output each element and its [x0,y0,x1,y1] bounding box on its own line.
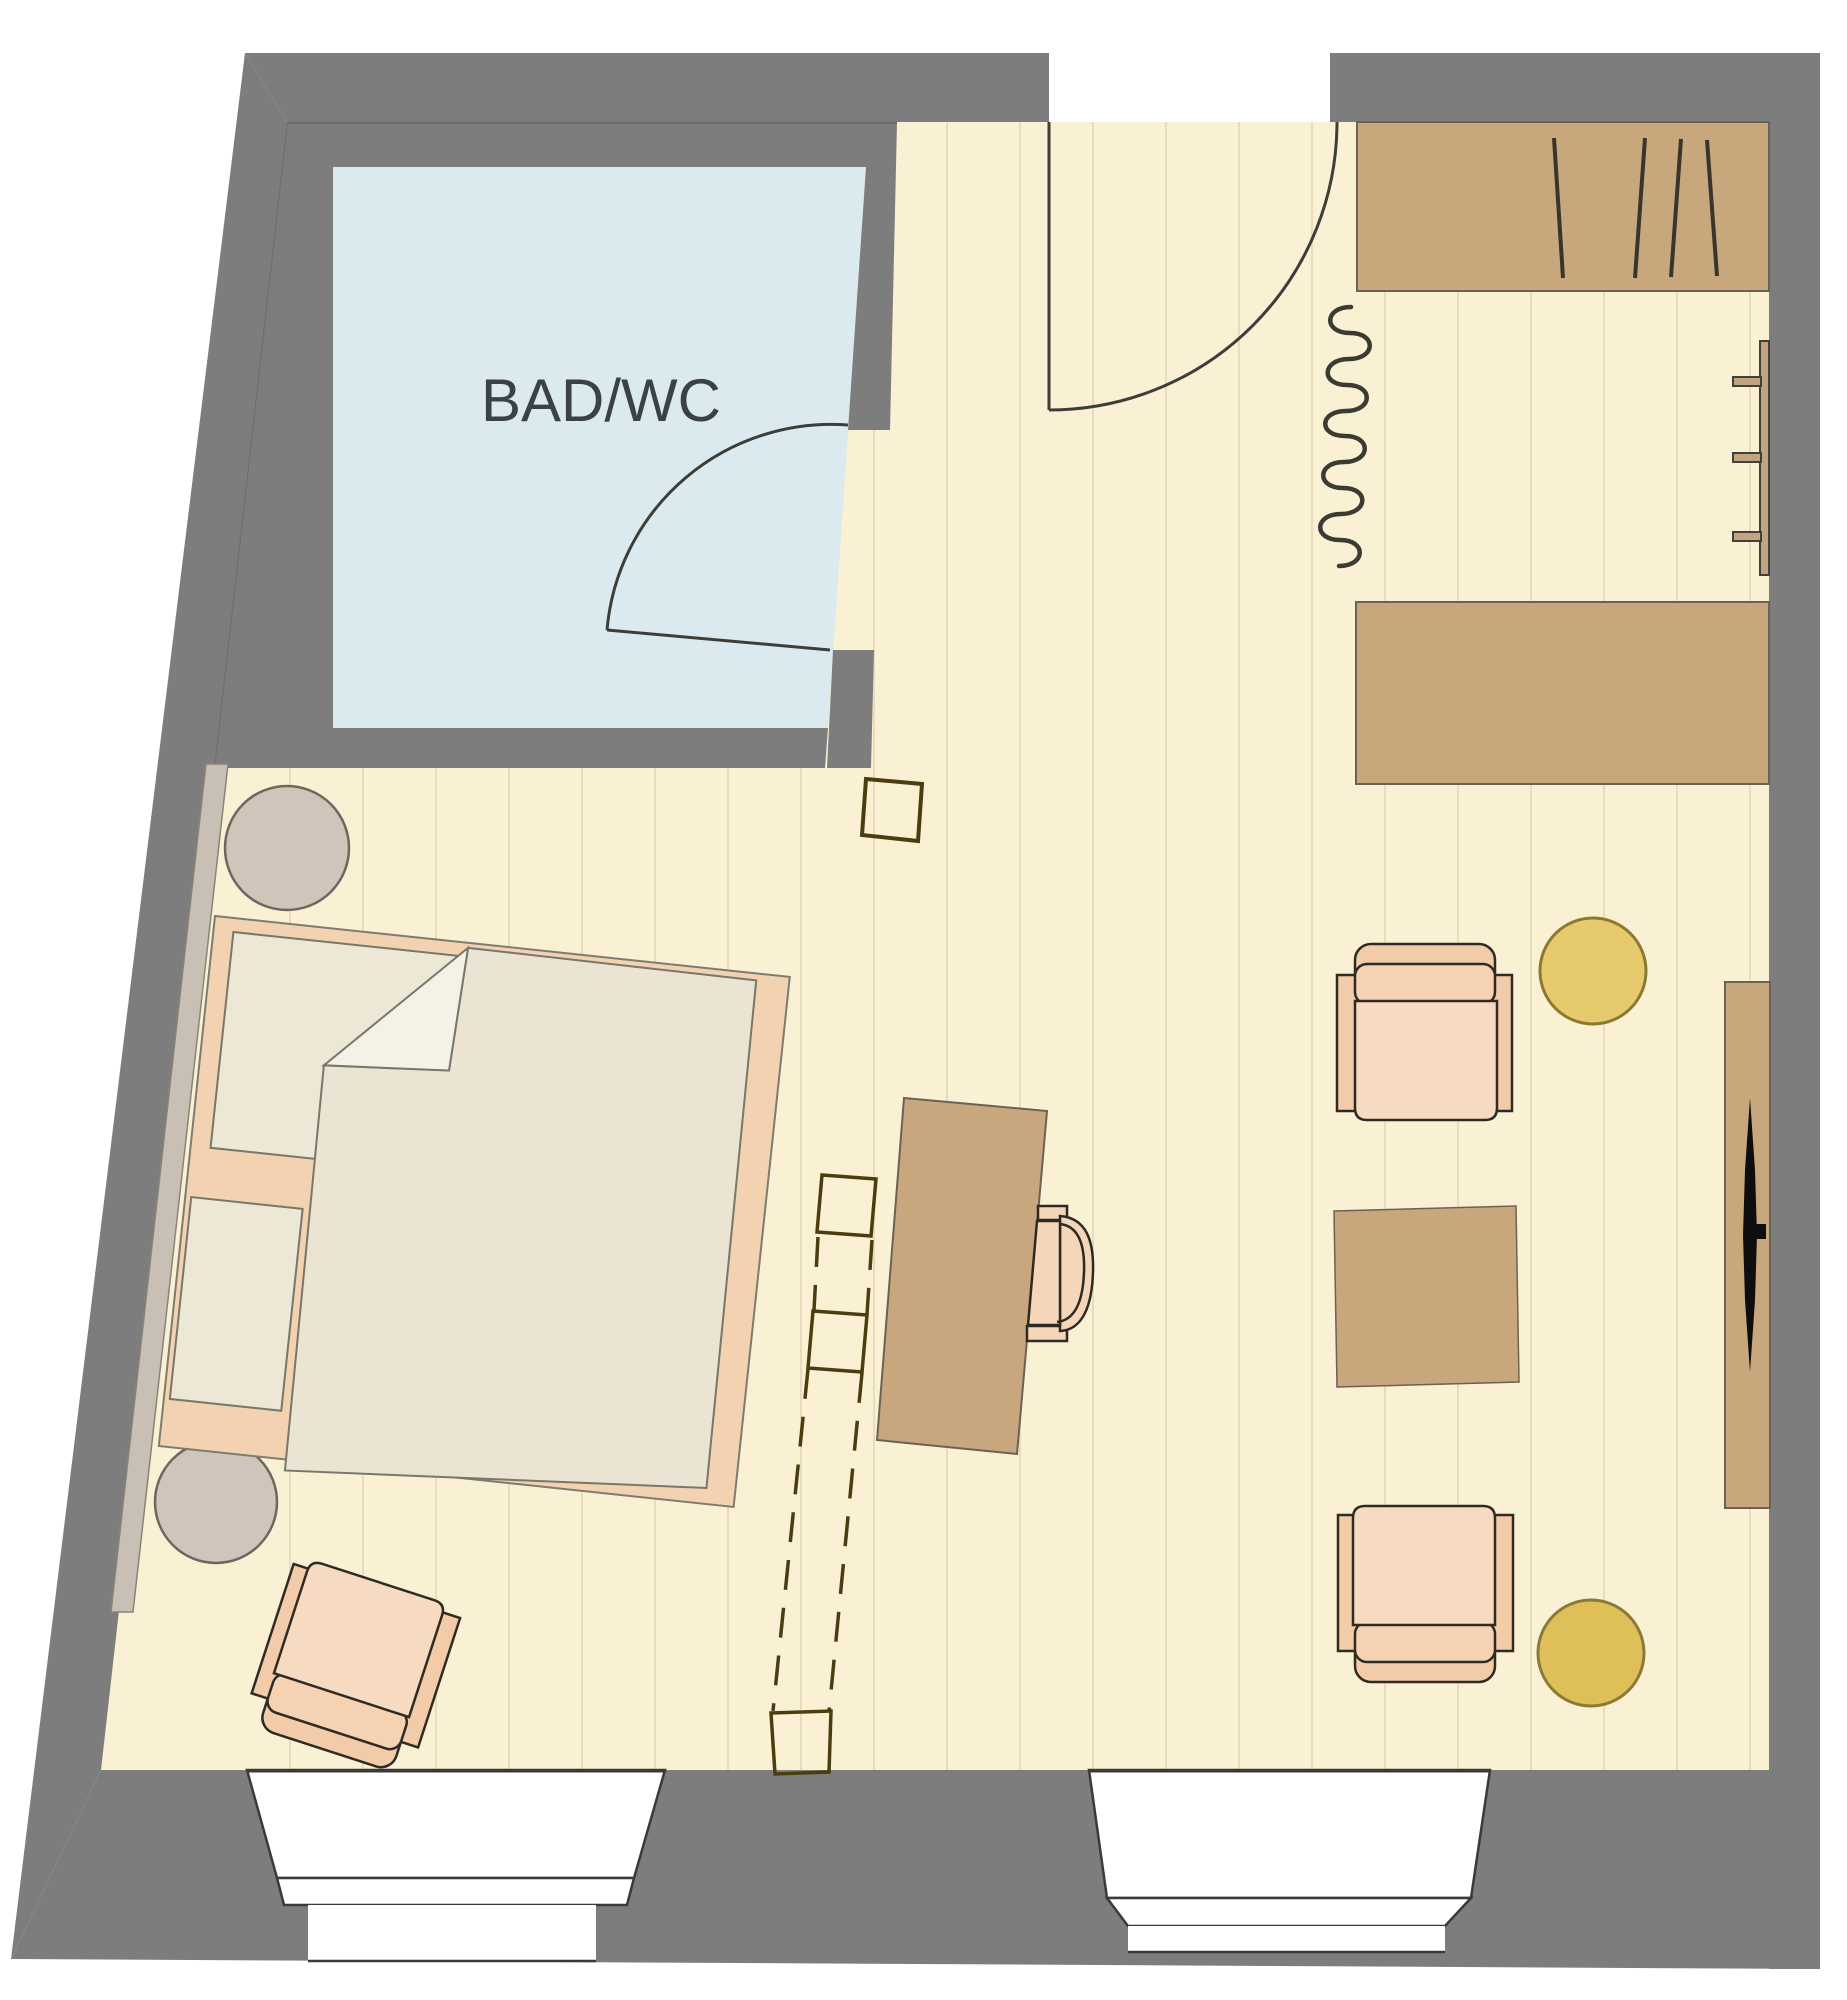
svg-text:BAD/WC: BAD/WC [481,367,721,434]
